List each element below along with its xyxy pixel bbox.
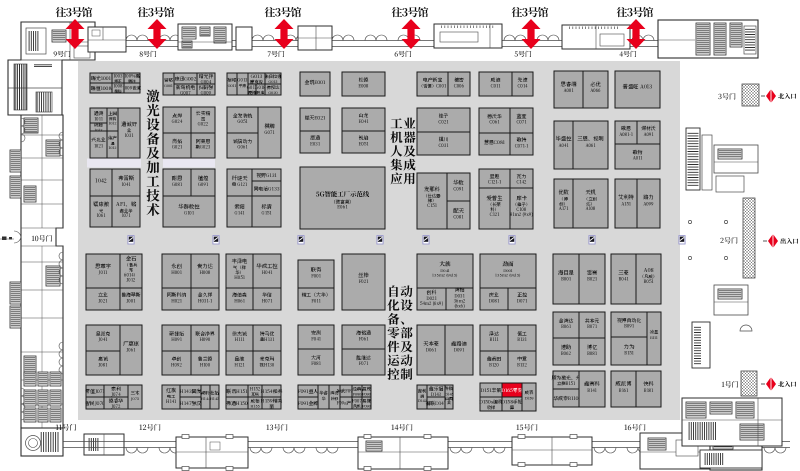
svg-text:D091: D091 <box>453 348 465 354</box>
svg-text:B062: B062 <box>560 351 572 357</box>
svg-text:H031-1: H031-1 <box>197 298 213 304</box>
svg-text:H152: H152 <box>249 386 261 392</box>
svg-text:G024: G024 <box>172 119 183 125</box>
svg-text:A108: A108 <box>585 206 596 212</box>
svg-text:G151: G151 <box>262 211 273 217</box>
svg-text:135m2 (9x15): 135m2 (9x15) <box>495 273 520 279</box>
svg-text:D159: D159 <box>523 396 533 401</box>
svg-text:H051: H051 <box>233 275 246 281</box>
svg-text:A08: A08 <box>644 266 654 274</box>
svg-text:100%高: 100%高 <box>124 72 140 79</box>
svg-text:F007: F007 <box>351 398 362 404</box>
svg-text:智民J070: 智民J070 <box>85 400 105 407</box>
svg-text:A001: A001 <box>563 88 574 94</box>
svg-text:H041: H041 <box>261 270 274 276</box>
svg-text:留铭: 留铭 <box>164 78 173 84</box>
svg-text:C071-1: C071-1 <box>515 143 529 149</box>
svg-text:D071: D071 <box>516 298 528 304</box>
svg-text:F090: F090 <box>361 393 371 398</box>
svg-text:天机: 天机 <box>585 188 596 196</box>
svg-text:H141: H141 <box>165 399 177 405</box>
svg-text:联得: 联得 <box>310 265 322 273</box>
svg-text:思睿端: 思睿端 <box>561 80 578 88</box>
svg-text:恩 G121: 恩 G121 <box>231 182 248 188</box>
svg-text:三菱: 三菱 <box>618 269 629 277</box>
svg-text:J021: J021 <box>98 298 109 304</box>
svg-text:E051: E051 <box>358 141 370 147</box>
svg-text:上园: 上园 <box>108 111 117 117</box>
svg-text:映连: 映连 <box>256 90 265 96</box>
svg-text:研腾: 研腾 <box>93 121 103 128</box>
svg-text:1031: 1031 <box>125 133 135 139</box>
svg-text:D165零刻: D165零刻 <box>500 387 522 394</box>
svg-text:B141: B141 <box>586 388 597 394</box>
svg-text:器: 器 <box>509 405 515 411</box>
svg-text:三恩、视明: 三恩、视明 <box>577 135 604 143</box>
svg-text:库卡: 库卡 <box>516 194 527 202</box>
svg-text:B111: B111 <box>489 337 500 343</box>
svg-text:B132: B132 <box>516 362 527 368</box>
svg-text:(6x6): (6x6) <box>454 303 465 309</box>
svg-text:H147强汉: H147强汉 <box>179 400 202 407</box>
svg-text:爱普生: 爱普生 <box>486 194 504 202</box>
svg-text:曝恒1008: 曝恒1008 <box>91 85 111 92</box>
svg-text:路力: 路力 <box>642 193 654 201</box>
svg-text:成表: 成表 <box>524 389 534 396</box>
svg-text:胡铃: 胡铃 <box>200 391 210 397</box>
svg-text:杜拓: 杜拓 <box>210 390 219 397</box>
svg-text:A151: A151 <box>621 201 632 207</box>
svg-text:81m2 (9x9): 81m2 (9x9) <box>510 212 533 218</box>
svg-text:索阳: 索阳 <box>234 203 245 211</box>
svg-text:美: 美 <box>446 400 451 406</box>
svg-text:华成工控: 华成工控 <box>256 262 278 270</box>
svg-text:54m2 (6x9): 54m2 (6x9) <box>420 301 444 307</box>
svg-text:平康: 平康 <box>239 83 247 89</box>
svg-text:收样: 收样 <box>487 405 496 411</box>
svg-text:慧恩C081: 慧恩C081 <box>484 139 506 146</box>
svg-text:H071: H071 <box>261 298 274 304</box>
svg-text:H155: H155 <box>249 405 259 410</box>
svg-text:J041: J041 <box>98 337 109 343</box>
svg-text:通诚好: 通诚好 <box>121 120 138 128</box>
svg-text:135m2 (9x15): 135m2 (9x15) <box>432 273 457 279</box>
svg-text:威派博: 威派博 <box>615 380 633 388</box>
svg-text:A011: A011 <box>633 156 644 162</box>
svg-text:朱日拉娜: 朱日拉娜 <box>264 74 282 80</box>
svg-text:D151丰策: D151丰策 <box>480 387 502 394</box>
svg-text:F011: F011 <box>310 298 321 304</box>
svg-text:G101: G101 <box>184 211 195 217</box>
svg-text:J012: J012 <box>126 277 136 283</box>
svg-text:H021: H021 <box>170 298 183 304</box>
svg-text:斯G023: 斯G023 <box>195 144 211 151</box>
svg-text:F061: F061 <box>358 336 370 342</box>
svg-text:C061: C061 <box>490 120 501 126</box>
svg-text:博亿: 博亿 <box>587 343 598 351</box>
svg-text:标清: 标清 <box>261 203 272 211</box>
svg-text:G051: G051 <box>237 119 248 125</box>
svg-text:胜腾: 胜腾 <box>444 386 454 392</box>
svg-text:1009微束: 1009微束 <box>123 86 142 92</box>
svg-text:A091: A091 <box>643 132 654 138</box>
svg-text:犀天E021: 犀天E021 <box>305 115 326 122</box>
svg-text:丽: 丽 <box>268 404 274 410</box>
svg-text:吉利: 吉利 <box>418 387 427 394</box>
svg-text:金玑E001: 金玑E001 <box>304 79 326 86</box>
svg-text:A171: A171 <box>559 206 570 212</box>
svg-text:思章宇: 思章宇 <box>95 262 112 270</box>
svg-text:1071: 1071 <box>122 213 132 219</box>
svg-text:视H130: 视H130 <box>259 362 275 368</box>
svg-text:B131: B131 <box>516 337 527 343</box>
svg-text:1021: 1021 <box>94 144 104 150</box>
svg-text:福联D147: 福联D147 <box>425 400 446 407</box>
svg-text:B071: B071 <box>586 324 598 330</box>
svg-text:永创: 永创 <box>170 262 182 270</box>
svg-text:C142: C142 <box>517 180 527 186</box>
svg-text:B021: B021 <box>586 277 598 283</box>
svg-text:伟产: 伟产 <box>107 135 117 142</box>
svg-text:1008: 1008 <box>113 83 123 89</box>
svg-text:普盛旺 A013: 普盛旺 A013 <box>622 83 653 91</box>
svg-text:G021: G021 <box>172 145 183 151</box>
svg-text:F001: F001 <box>310 273 322 279</box>
svg-text:A066: A066 <box>590 88 601 94</box>
svg-text:C031: C031 <box>439 143 450 149</box>
svg-text:G013: G013 <box>237 78 248 84</box>
svg-text:棋牌: 棋牌 <box>264 122 275 130</box>
svg-text:毕盛控: 毕盛控 <box>556 135 573 143</box>
svg-text:力为: 力为 <box>624 342 635 350</box>
svg-text:F090: F090 <box>361 405 371 410</box>
svg-text:1042: 1042 <box>95 176 107 184</box>
svg-text:F091金牌: F091金牌 <box>297 400 320 407</box>
svg-text:G071: G071 <box>264 130 275 136</box>
svg-text:快科: 快科 <box>643 380 654 388</box>
svg-text:同电话G133: 同电话G133 <box>254 185 280 192</box>
svg-text:D081: D081 <box>488 298 500 304</box>
svg-text:H091: H091 <box>170 337 183 343</box>
svg-text:C081: C081 <box>454 214 465 220</box>
svg-text:1003: 1003 <box>113 73 123 79</box>
svg-text:曝光1001: 曝光1001 <box>91 75 111 82</box>
svg-text:发那科: 发那科 <box>424 185 441 193</box>
svg-text:G009: G009 <box>201 91 212 97</box>
svg-text:B081: B081 <box>586 351 598 357</box>
svg-text:D061: D061 <box>425 348 437 354</box>
svg-text:雷赛: 雷赛 <box>586 269 598 277</box>
svg-text:G091: G091 <box>198 182 209 188</box>
svg-text:零值J071: 零值J071 <box>84 388 105 395</box>
svg-text:C071: C071 <box>517 120 528 126</box>
svg-text:E008: E008 <box>357 83 369 89</box>
svg-text:J081: J081 <box>98 362 109 368</box>
svg-text:康迅G002: 康迅G002 <box>174 75 197 82</box>
svg-text:海目星: 海目星 <box>558 269 575 277</box>
svg-text:天本菱: 天本菱 <box>423 340 440 348</box>
svg-text:G011: G011 <box>228 84 237 89</box>
svg-text:E061: E061 <box>336 204 348 211</box>
svg-text:H061: H061 <box>233 298 246 304</box>
svg-text:B061: B061 <box>560 324 572 330</box>
svg-text:B181: B181 <box>643 388 654 394</box>
svg-text:B111: B111 <box>649 336 658 341</box>
svg-text:G022: G022 <box>198 122 209 128</box>
svg-text:易捷: 易捷 <box>362 398 371 404</box>
svg-text:贵力达: 贵力达 <box>197 262 214 270</box>
svg-text:经典: 经典 <box>352 386 362 392</box>
svg-text:H145: H145 <box>209 397 219 402</box>
svg-text:1012: 1012 <box>108 122 117 127</box>
svg-text:德腾: 德腾 <box>113 89 122 95</box>
svg-text:A099: A099 <box>643 201 654 207</box>
svg-text:C151: C151 <box>427 203 437 209</box>
svg-text:C021: C021 <box>439 119 450 125</box>
svg-text:植煌: 植煌 <box>198 174 209 182</box>
svg-text:联讯H151: 联讯H151 <box>225 388 248 395</box>
svg-text:F041: F041 <box>310 336 322 342</box>
svg-text:J075: J075 <box>130 397 139 402</box>
svg-text:B161: B161 <box>618 388 629 394</box>
svg-text:E041: E041 <box>358 119 370 125</box>
svg-text:G007: G007 <box>180 91 190 97</box>
svg-text:慶梅: 慶梅 <box>247 90 256 96</box>
svg-text:广惠康: 广惠康 <box>123 340 140 348</box>
svg-text:F091重人: F091重人 <box>297 388 319 395</box>
svg-text:配天: 配天 <box>452 206 464 214</box>
svg-text:AF1、铭: AF1、铭 <box>116 200 137 208</box>
svg-text:优数: 优数 <box>558 188 569 196</box>
svg-text:H121: H121 <box>233 362 245 368</box>
svg-text:G141: G141 <box>235 211 246 217</box>
svg-text:B151: B151 <box>623 350 634 356</box>
svg-text:风机: 风机 <box>352 404 361 410</box>
svg-text:华: 华 <box>322 396 326 402</box>
svg-text:华成泰B110: 华成泰B110 <box>553 395 578 402</box>
svg-text:华睿: 华睿 <box>319 391 328 397</box>
svg-text:G081: G081 <box>172 182 183 188</box>
svg-text:三木: 三木 <box>131 390 140 397</box>
svg-text:G020: G020 <box>268 91 277 96</box>
svg-text:纤缝天: 纤缝天 <box>232 174 249 182</box>
svg-text:丰泽电: 丰泽电 <box>232 257 249 265</box>
svg-text:H143固发: H143固发 <box>179 388 202 395</box>
svg-text:B041: B041 <box>618 277 630 283</box>
svg-text:C011: C011 <box>491 83 501 89</box>
svg-text:金石: 金石 <box>125 254 137 262</box>
svg-text:J061: J061 <box>126 348 137 354</box>
svg-text:J011: J011 <box>98 270 108 276</box>
svg-text:丝棒: 丝棒 <box>358 271 369 279</box>
svg-text:昌茂: 昌茂 <box>362 385 371 392</box>
svg-text:H100: H100 <box>199 362 211 368</box>
svg-text:B001: B001 <box>560 277 572 283</box>
svg-text:1041: 1041 <box>122 182 132 188</box>
svg-text:H092: H092 <box>170 362 183 368</box>
svg-text:G061: G061 <box>237 145 248 151</box>
svg-text:B120: B120 <box>488 362 499 368</box>
svg-text:视野G131: 视野G131 <box>256 172 277 179</box>
svg-text:鑫赛科: 鑫赛科 <box>583 380 601 388</box>
svg-text:G001: G001 <box>164 84 173 89</box>
svg-text:华群数控: 华群数控 <box>178 203 200 211</box>
svg-text:通H131: 通H131 <box>259 337 275 343</box>
svg-text:B091: B091 <box>623 324 635 330</box>
svg-text:H008: H008 <box>199 270 212 276</box>
svg-text:佛视达: 佛视达 <box>265 84 280 91</box>
svg-text:H111: H111 <box>234 337 246 343</box>
svg-text:A041: A041 <box>558 143 569 149</box>
svg-text:耐恩: 耐恩 <box>171 174 183 182</box>
svg-text:F021: F021 <box>358 279 370 285</box>
svg-text:H154和养: H154和养 <box>260 388 283 395</box>
svg-text:H090: H090 <box>198 337 211 343</box>
svg-text:A061: A061 <box>585 143 596 149</box>
svg-text:华数: 华数 <box>453 178 464 186</box>
svg-text:速助: 速助 <box>561 343 572 351</box>
svg-text:镭康激: 镭康激 <box>93 200 110 208</box>
svg-text:E031: E031 <box>309 141 321 147</box>
svg-text:F071: F071 <box>358 361 370 367</box>
svg-text:（雷恒）C001: （雷恒）C001 <box>419 82 447 89</box>
svg-text:C121-1: C121-1 <box>488 180 502 186</box>
svg-text:C091: C091 <box>454 186 465 192</box>
svg-text:A081-1: A081-1 <box>619 132 634 138</box>
svg-text:凌显: 凌显 <box>649 330 659 336</box>
svg-text:B051: B051 <box>643 279 655 285</box>
svg-text:H001: H001 <box>170 270 183 276</box>
svg-text:立德B151: 立德B151 <box>556 380 576 387</box>
svg-text:弗雷斯: 弗雷斯 <box>118 174 135 182</box>
svg-text:1061: 1061 <box>97 213 107 219</box>
svg-text:棺铭: 棺铭 <box>227 78 237 84</box>
svg-text:C014: C014 <box>518 83 528 89</box>
svg-text:弗通H150: 弗通H150 <box>225 400 248 407</box>
svg-text:C006: C006 <box>454 83 465 89</box>
svg-text:C121: C121 <box>490 212 500 218</box>
svg-text:1012: 1012 <box>108 146 117 151</box>
svg-text:鑫路迪: 鑫路迪 <box>450 340 468 348</box>
svg-text:威柏: 威柏 <box>250 398 261 404</box>
svg-text:J072: J072 <box>110 404 121 410</box>
svg-text:F081: F081 <box>310 361 322 367</box>
svg-text:艾利特: 艾利特 <box>617 193 635 201</box>
svg-text:J001: J001 <box>126 298 137 304</box>
svg-text:必优: 必优 <box>589 80 601 88</box>
